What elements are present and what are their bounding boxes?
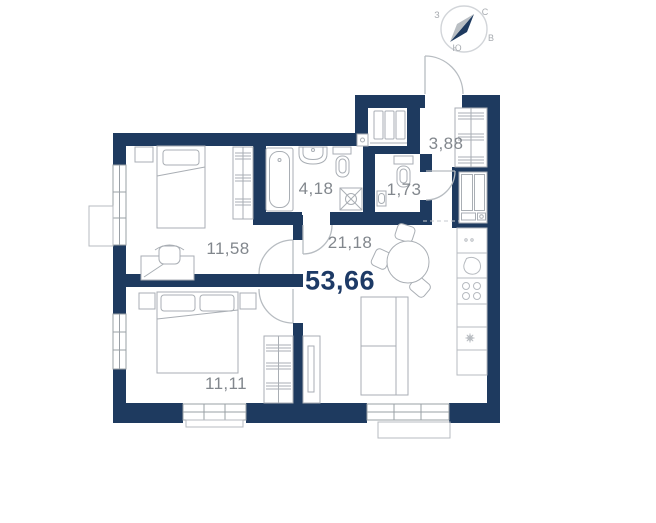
balcony-ledge-bottom bbox=[378, 422, 450, 438]
oven bbox=[457, 327, 487, 350]
compass-east-label: В bbox=[488, 33, 494, 43]
closet-panel-1 bbox=[374, 111, 383, 139]
nightstand-3 bbox=[240, 293, 256, 309]
bed-double-pillow-left bbox=[161, 295, 195, 311]
compass-south-label: Ю bbox=[452, 43, 461, 53]
kitchen-counter-segment bbox=[457, 350, 487, 375]
wall-vestibule-bottom bbox=[293, 323, 303, 403]
nightstand-1 bbox=[135, 147, 153, 162]
bedroom1-furniture bbox=[135, 146, 253, 280]
fridge bbox=[459, 172, 487, 223]
floor-plan: 11,58 4,18 1,73 3,88 21,18 53,66 11,11 С… bbox=[0, 0, 656, 523]
bathroom-toilet bbox=[333, 147, 351, 177]
area-label-kitchen-living: 21,18 bbox=[328, 233, 373, 253]
dining-table bbox=[387, 241, 429, 283]
closet-panel-2 bbox=[385, 111, 394, 139]
wall-left-mid bbox=[113, 245, 126, 314]
wall-top-main bbox=[113, 133, 368, 146]
wardrobe-bedroom2 bbox=[264, 336, 293, 403]
kitchen-sink bbox=[457, 253, 487, 278]
wardrobe-bedroom1 bbox=[233, 147, 253, 219]
closet-panel-3 bbox=[396, 111, 405, 139]
total-area-label: 53,66 bbox=[305, 266, 375, 297]
washing-machine bbox=[340, 188, 362, 210]
stove bbox=[457, 278, 487, 304]
wall-wc-bottom bbox=[363, 212, 420, 225]
bathtub bbox=[266, 148, 293, 211]
hallway-furniture bbox=[455, 108, 487, 223]
entrance-door bbox=[425, 56, 463, 94]
floor-plan-drawing bbox=[0, 0, 656, 523]
window-ledge-left bbox=[89, 206, 113, 246]
kitchen-counter bbox=[457, 228, 487, 375]
area-label-wc: 1,73 bbox=[387, 180, 422, 200]
wc-door bbox=[426, 171, 455, 200]
wall-bath-wc bbox=[363, 146, 375, 212]
wall-bottom-left bbox=[113, 403, 183, 423]
wall-bed1-bath bbox=[253, 146, 266, 212]
bed-single-pillow bbox=[163, 150, 199, 165]
wall-right-outer bbox=[487, 95, 500, 423]
wall-bottom-right bbox=[449, 403, 500, 423]
window-bedroom1-left bbox=[113, 165, 126, 245]
area-label-bathroom: 4,18 bbox=[299, 179, 334, 199]
wall-bath-bottom-b bbox=[330, 212, 363, 225]
compass-west-label: З bbox=[434, 10, 439, 20]
nightstand-2 bbox=[139, 293, 155, 309]
wall-bottom-mid bbox=[246, 403, 367, 423]
bedroom1-door bbox=[259, 240, 293, 274]
window-living-bottom bbox=[367, 404, 450, 438]
electrical-box bbox=[357, 134, 368, 146]
shelf-unit bbox=[303, 336, 320, 403]
window-bedroom2-left bbox=[113, 314, 126, 369]
area-label-hallway: 3,88 bbox=[429, 134, 464, 154]
desk-chair bbox=[155, 245, 184, 264]
wc-fixture bbox=[377, 191, 386, 206]
compass-rose bbox=[441, 6, 487, 52]
compass-north-label: С bbox=[482, 7, 489, 17]
area-label-bedroom1: 11,58 bbox=[206, 239, 249, 259]
wall-vestibule-top bbox=[293, 215, 303, 240]
wall-wc-right-top bbox=[420, 154, 432, 172]
sofa bbox=[361, 297, 408, 395]
bedroom2-door bbox=[259, 289, 293, 323]
kitchen-cabinet bbox=[457, 228, 487, 253]
bathroom-sink bbox=[299, 147, 327, 164]
bed-double-pillow-right bbox=[200, 295, 234, 311]
area-label-bedroom2: 11,11 bbox=[205, 374, 247, 394]
kitchen-counter-segment bbox=[457, 304, 487, 327]
dining-chair bbox=[394, 223, 416, 244]
wall-closet-right bbox=[407, 95, 420, 154]
wall-left-top bbox=[113, 133, 126, 165]
window-bedroom2-bottom bbox=[183, 404, 246, 427]
